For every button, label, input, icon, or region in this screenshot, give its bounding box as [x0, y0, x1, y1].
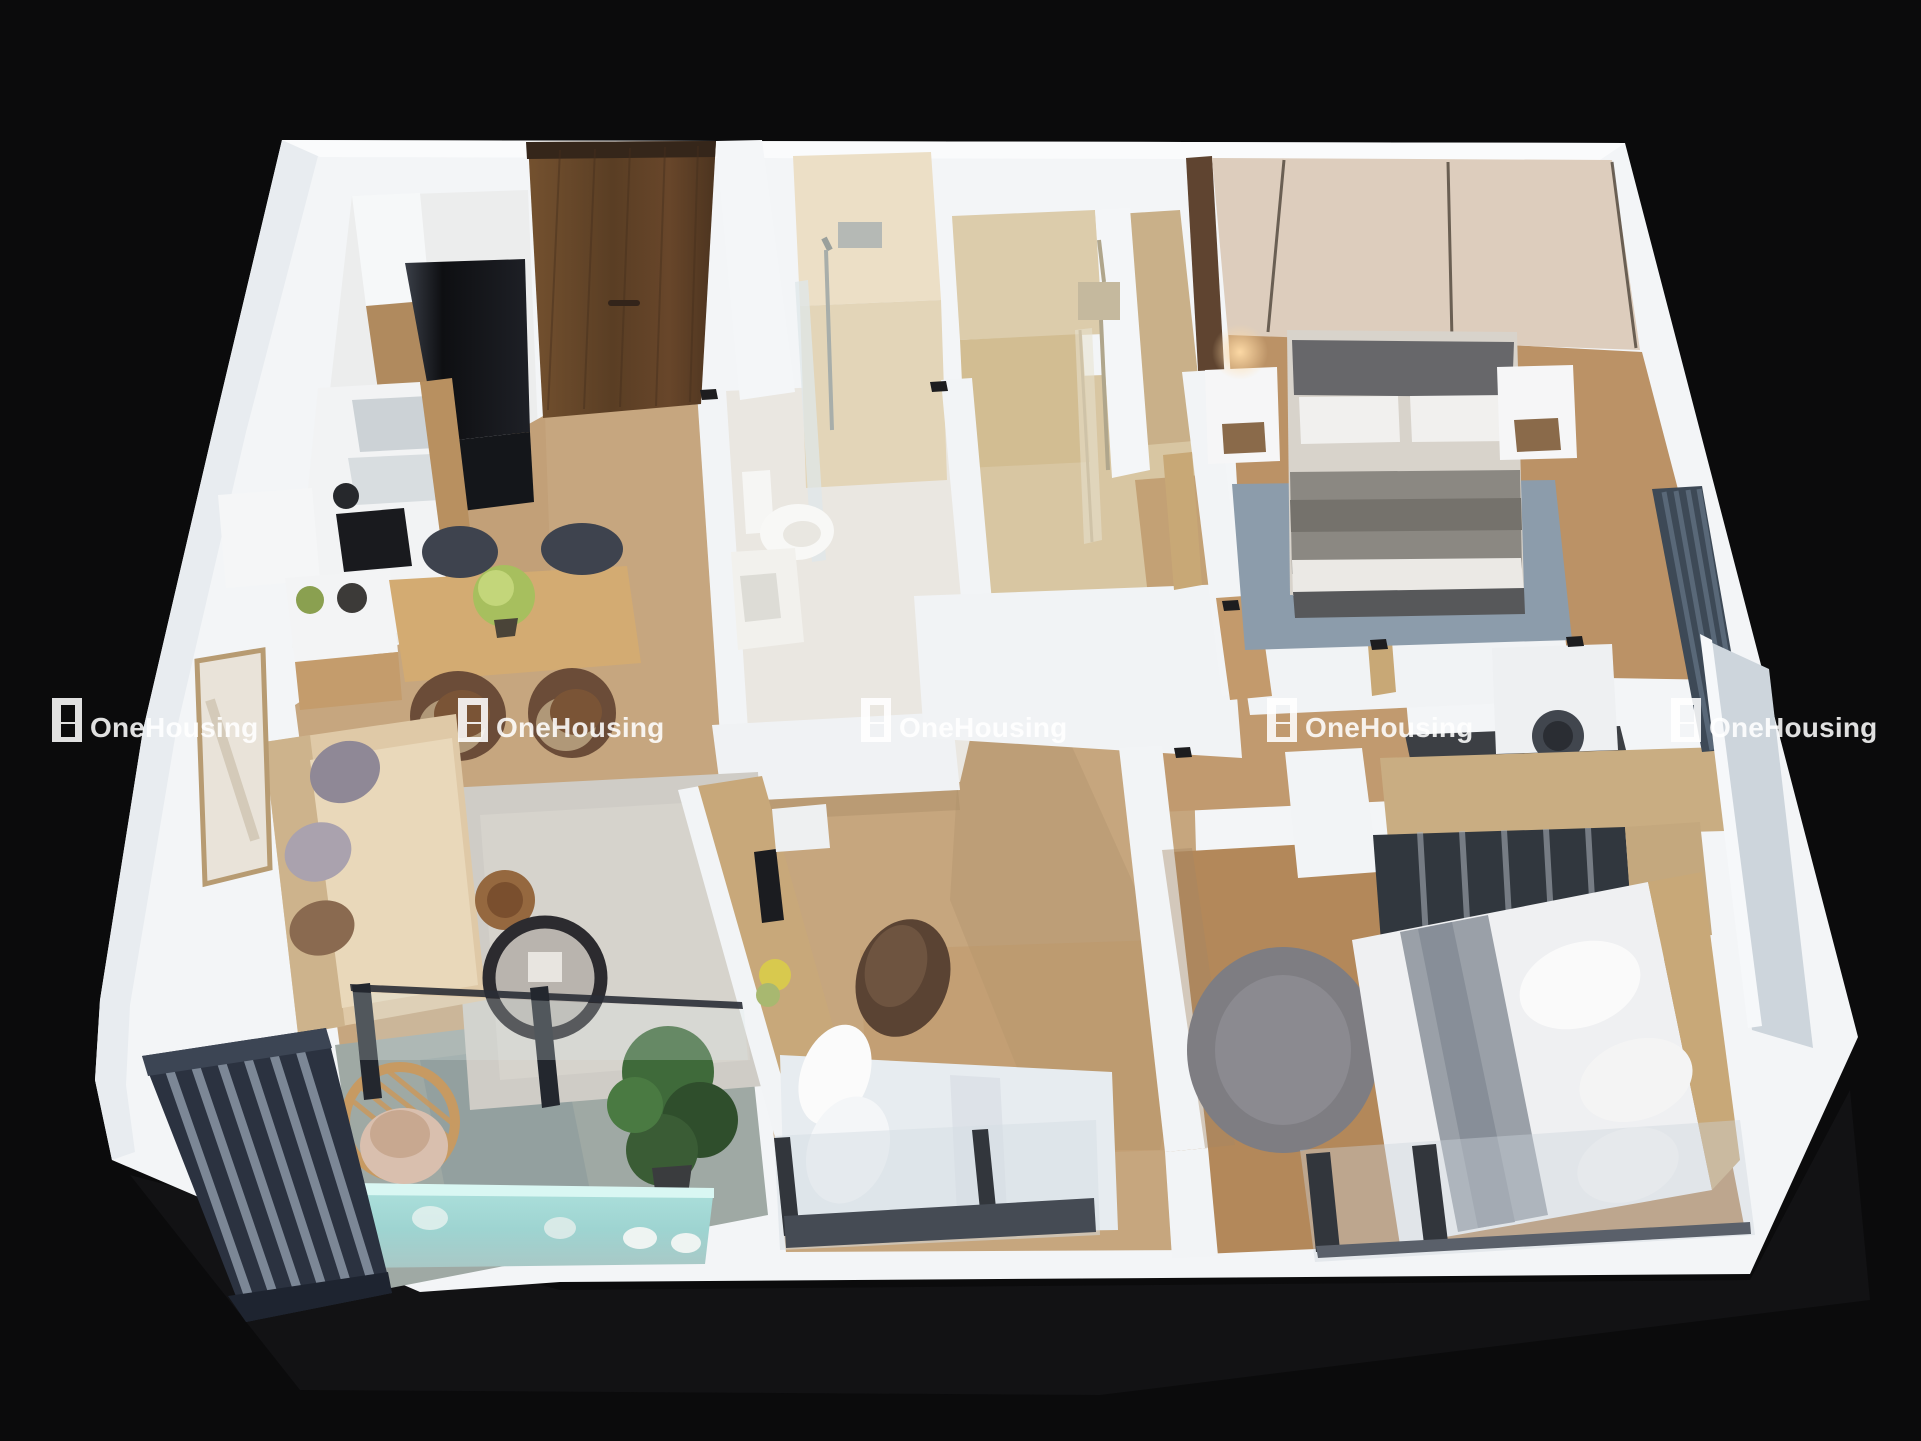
svg-text:OneHousing: OneHousing [90, 712, 258, 743]
svg-text:OneHousing: OneHousing [1305, 712, 1473, 743]
svg-text:OneHousing: OneHousing [899, 712, 1067, 743]
svg-text:OneHousing: OneHousing [496, 712, 664, 743]
svg-text:OneHousing: OneHousing [1709, 712, 1877, 743]
